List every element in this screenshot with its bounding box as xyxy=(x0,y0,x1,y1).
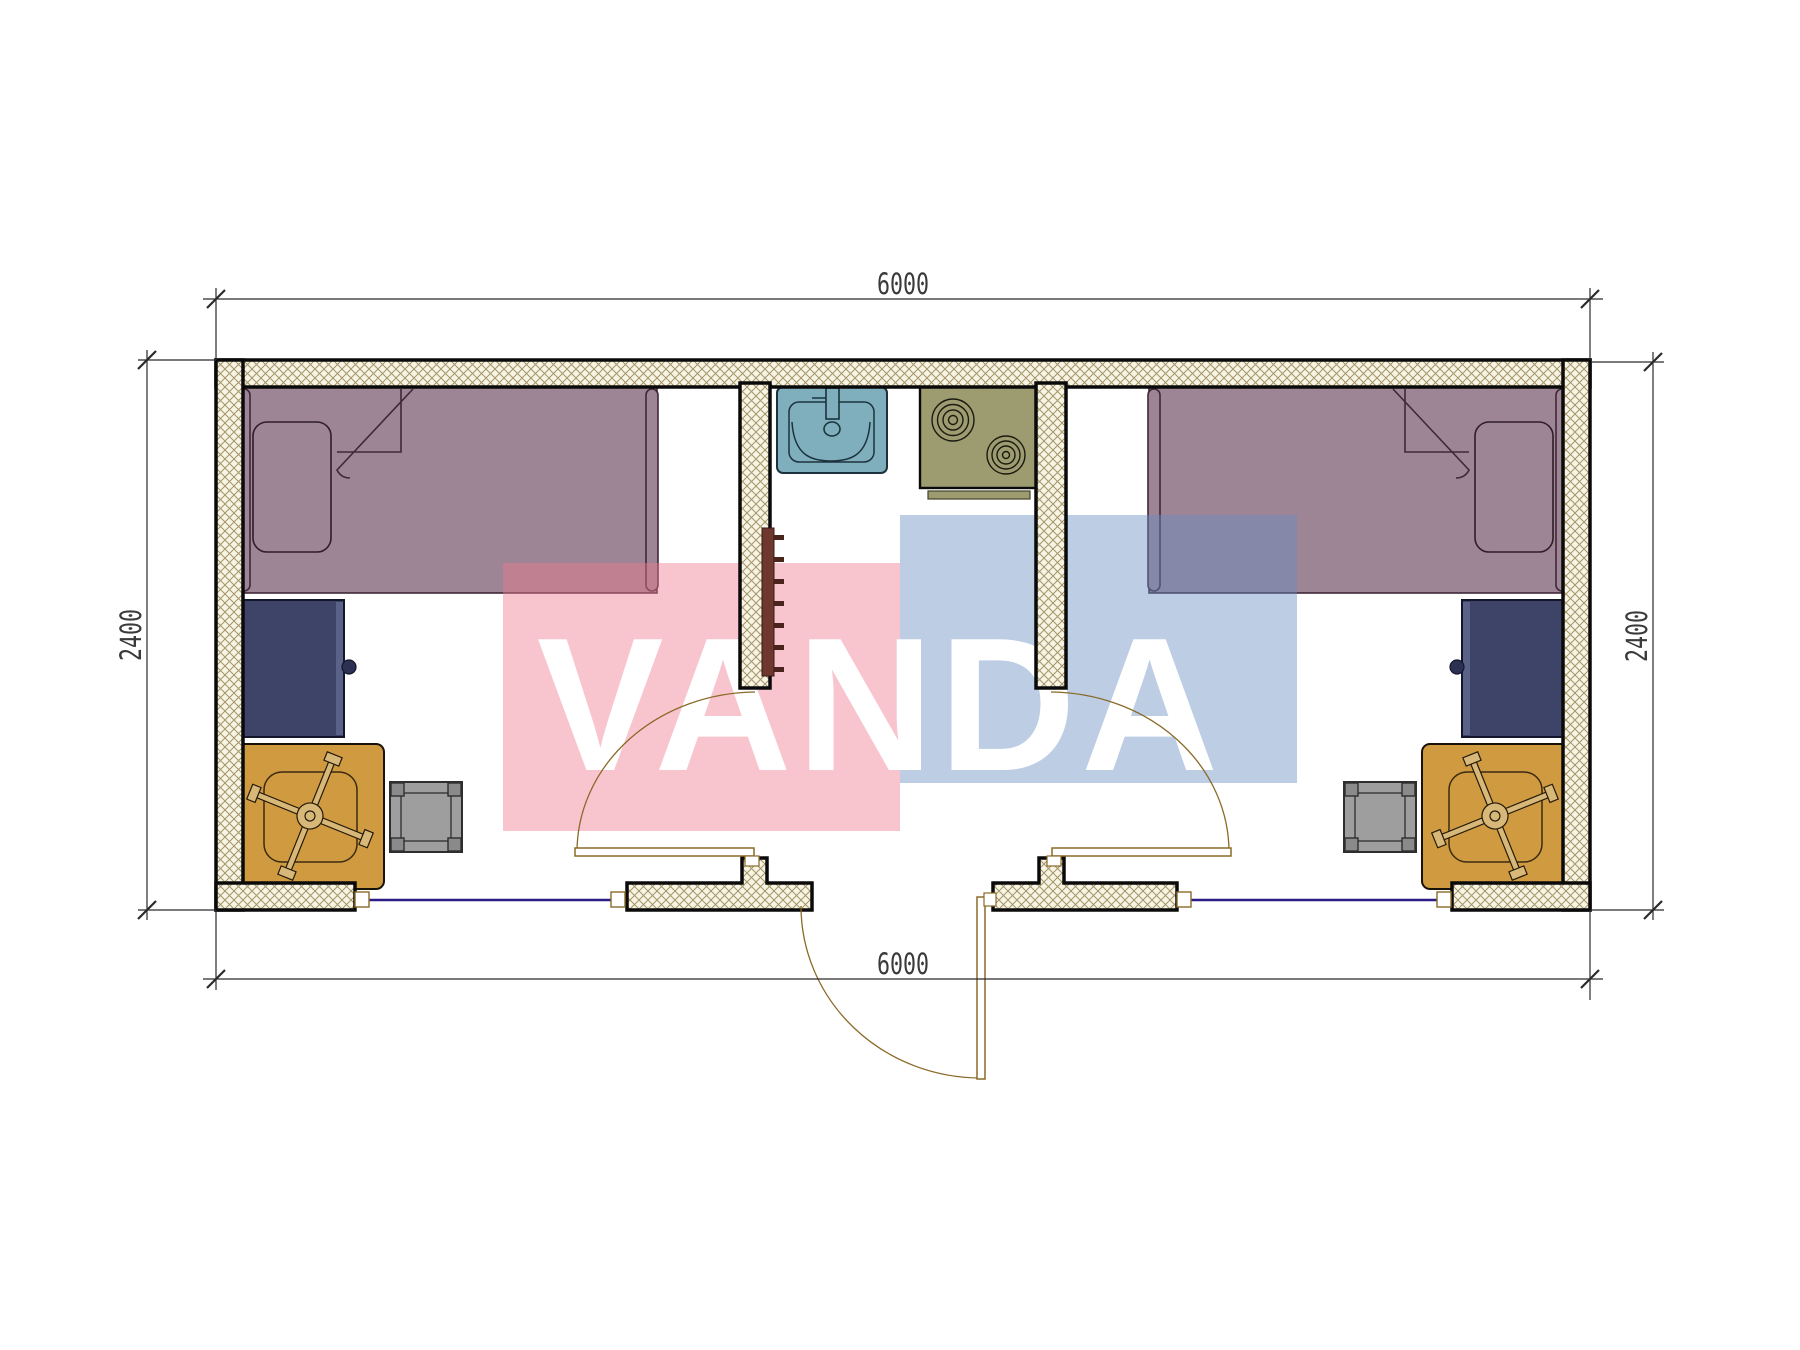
floor-plan-drawing: VANDA xyxy=(0,0,1800,1350)
dimension-top: 6000 xyxy=(203,267,1603,360)
dimension-bottom: 6000 xyxy=(203,910,1603,1000)
dimension-left: 2400 xyxy=(114,350,216,920)
left-bed-pillow xyxy=(253,422,331,552)
left-desk-knob xyxy=(342,660,356,674)
stove-stand xyxy=(928,491,1030,499)
wall-top xyxy=(216,360,1590,387)
dimension-top-label: 6000 xyxy=(877,267,929,301)
dimension-bottom-label: 6000 xyxy=(877,947,929,981)
wall-bottom-t-right xyxy=(993,858,1177,910)
right-door-leaf xyxy=(1052,848,1231,856)
right-desk-knob xyxy=(1450,660,1464,674)
left-bed-footboard xyxy=(646,389,658,591)
entrance-door xyxy=(801,893,996,1079)
floor-plan-page: VANDA xyxy=(0,0,1800,1350)
left-desk xyxy=(238,600,356,737)
right-office-chair xyxy=(1410,730,1580,901)
left-office-chair xyxy=(225,730,395,901)
windows xyxy=(355,892,1451,907)
entrance-door-leaf xyxy=(977,897,985,1079)
sink xyxy=(777,387,887,473)
wall-interior-right xyxy=(1036,383,1066,688)
stove xyxy=(920,387,1038,499)
dimension-right-label: 2400 xyxy=(1620,610,1654,662)
wall-right xyxy=(1563,360,1590,910)
left-door-leaf xyxy=(575,848,754,856)
right-stool xyxy=(1344,782,1416,852)
sink-faucet xyxy=(826,388,839,419)
wall-bottom-right xyxy=(1452,883,1590,910)
right-bed-pillow xyxy=(1475,422,1553,552)
left-stool xyxy=(390,782,462,852)
wall-bottom-left xyxy=(216,883,355,910)
wall-bottom-t-left xyxy=(627,858,812,910)
right-desk xyxy=(1450,600,1568,737)
wall-left xyxy=(216,360,243,910)
entrance-door-swing-arc xyxy=(801,906,981,1078)
dimension-right: 2400 xyxy=(1592,352,1664,920)
dimension-left-label: 2400 xyxy=(114,609,148,661)
left-bed xyxy=(238,387,658,593)
